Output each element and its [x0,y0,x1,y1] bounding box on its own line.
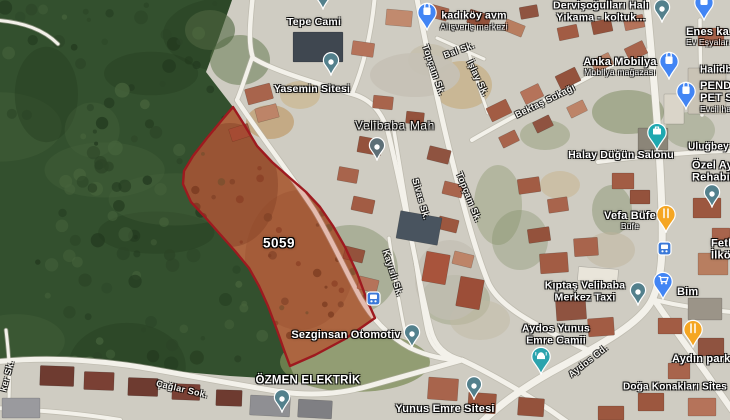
poi-label-aydos-yunus-emre-camii[interactable]: Aydos YunusEmre Camii [522,323,590,347]
poi-label-line: Halay Düğün Salonu [568,150,674,162]
poi-label-line: Emre Camii [522,335,590,347]
poi-label-line: kadıköy avm [440,10,508,22]
poi-label-kiptas-velibaba-merkez-taxi[interactable]: Kıptaş VelibabaMerkez Taxi [545,280,626,304]
poi-label-ozmen-elektrik[interactable]: ÖZMEN ELEKTRİK [255,375,360,388]
cart-pin[interactable] [648,266,678,300]
poi-label-line: Feth [711,238,730,250]
poi-label-anka-mobilya[interactable]: Anka MobilyaMobilya mağazası [583,56,656,78]
poi-label-ozel-ay-rehabilitasyon[interactable]: Özel AyRehabi [692,160,730,185]
satellite-map-view[interactable]: Topçam Sk.Bal Sk.İşlay Sk.Bektaş SokağıT… [0,0,730,420]
poi-label-kadikoy-avm[interactable]: kadıköy avmAlışveriş merkezi [440,10,508,31]
poi-label-line: Yasemin Sitesi [274,84,350,96]
poi-label-aydin-park[interactable]: Aydın park [672,353,730,365]
poi-label-line: PEND [700,80,730,92]
poi-label-line: Aydos Yunus [522,323,590,335]
poi-label-line: Evcil ha [700,105,730,115]
poi-label-line: Büfe [604,222,656,232]
poi-label-pendik-pet-shop[interactable]: PENDPET SEvcil ha [700,80,730,114]
poi-label-line: Merkez Taxi [545,292,626,304]
poi-label-line: Ev Eşyaları [686,38,730,48]
poi-label-yunus-emre-sitesi[interactable]: Yunus Emre Sitesi [395,403,494,415]
place-pin[interactable] [397,314,427,348]
shopping-pin[interactable] [689,0,719,21]
poi-label-line: Özel Ay [692,160,730,172]
poi-label-ulugbey[interactable]: Uluğbey [688,141,729,152]
briefcase-pin[interactable] [642,117,672,151]
poi-label-line: Mobilya mağazası [583,68,656,78]
place-pin[interactable] [647,0,677,23]
place-pin[interactable] [459,366,489,400]
shopping-pin[interactable] [671,76,701,110]
transit-icon[interactable] [366,291,381,306]
poi-label-halidbu[interactable]: Halidbü [700,64,730,75]
poi-label-bim[interactable]: Bim [677,286,698,298]
place-pin[interactable] [308,0,338,10]
poi-label-line: Tepe Cami [287,17,341,29]
poi-label-sezginsan-otomotiv[interactable]: Sezginsan Otomotiv [291,329,400,341]
poi-label-vefa-bufe[interactable]: Vefa BüfeBüfe [604,210,656,232]
poi-label-line: Aydın park [672,353,730,365]
transit-icon[interactable] [657,241,672,256]
poi-label-line: Sezginsan Otomotiv [291,329,400,341]
poi-label-line: Bim [677,286,698,298]
poi-label-line: İlkö [711,250,730,262]
poi-label-line: Uluğbey [688,141,729,152]
shopping-pin[interactable] [412,0,442,31]
place-pin[interactable] [316,42,346,76]
poi-label-line: Velibaba Mah [355,119,435,132]
poi-label-tepe-cami[interactable]: Tepe Cami [287,17,341,29]
poi-label-line: Alışveriş merkezi [440,22,508,32]
poi-label-line: ÖZMEN ELEKTRİK [255,375,360,388]
poi-label-line: Dervişoğulları Halı [553,0,649,12]
parcel-number-label: 5059 [263,236,295,251]
poi-label-halay-dugun-salonu[interactable]: Halay Düğün Salonu [568,150,674,162]
poi-label-line: Yunus Emre Sitesi [395,403,494,415]
food-pin[interactable] [678,314,708,348]
poi-label-line: Kıptaş Velibaba [545,280,626,292]
shopping-pin[interactable] [654,46,684,80]
poi-label-doga-konaklari-sitesi[interactable]: Doğa Konakları Sites [623,381,727,392]
poi-label-fethi-ilkogretim[interactable]: Fethİlkö [711,238,730,263]
poi-label-line: Doğa Konakları Sites [623,381,727,392]
poi-label-velibaba-mah[interactable]: Velibaba Mah [355,119,435,132]
poi-label-dervisogullari-hali-yikama[interactable]: Dervişoğulları HalıYıkama - koltuk... [553,0,649,24]
poi-label-line: PET S [700,92,730,104]
poi-label-enes-ev-esyalari[interactable]: Enes kaEv Eşyaları [686,26,730,48]
poi-label-line: Yıkama - koltuk... [553,12,649,24]
poi-label-yasemin-sitesi[interactable]: Yasemin Sitesi [274,84,350,96]
poi-label-line: Rehabi [692,172,730,184]
poi-label-line: Halidbü [700,64,730,75]
